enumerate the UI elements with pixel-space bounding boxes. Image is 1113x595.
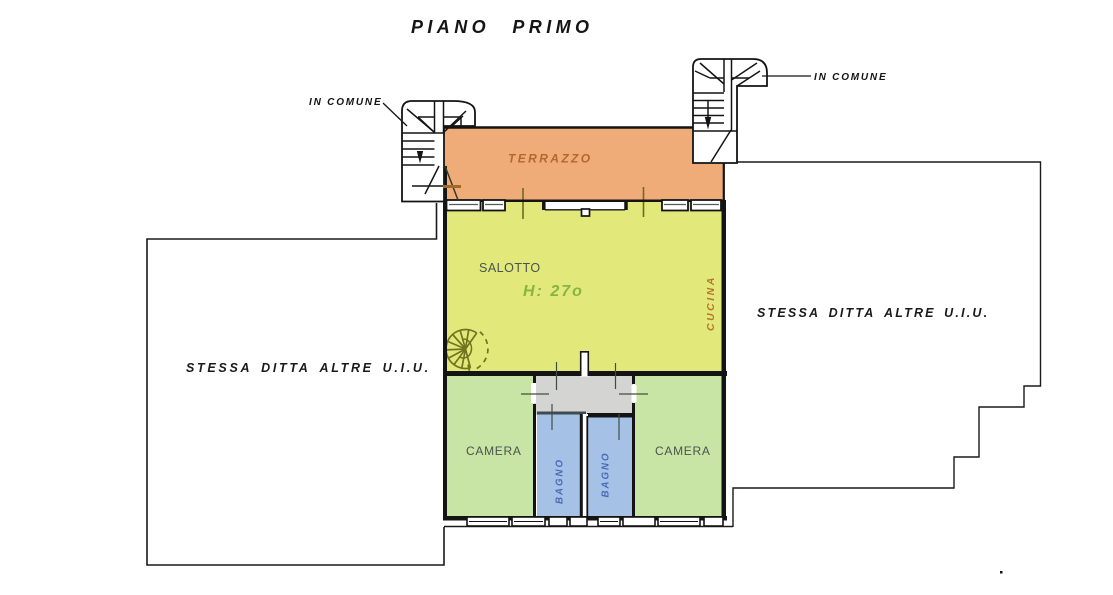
svg-text:IN COMUNE: IN COMUNE (814, 72, 887, 83)
svg-text:CAMERA: CAMERA (466, 444, 522, 458)
svg-text:PIANO PRIMO: PIANO PRIMO (411, 17, 593, 37)
svg-text:STESSA DITTA ALTRE U.I.U.: STESSA DITTA ALTRE U.I.U. (757, 306, 989, 320)
svg-text:STESSA DITTA ALTRE U.I.U.: STESSA DITTA ALTRE U.I.U. (186, 361, 431, 375)
svg-text:H: 27o: H: 27o (523, 283, 584, 300)
svg-text:TERRAZZO: TERRAZZO (508, 152, 593, 166)
svg-text:BAGNO: BAGNO (555, 458, 566, 504)
svg-text:CUCINA: CUCINA (705, 275, 717, 331)
svg-text:IN COMUNE: IN COMUNE (309, 97, 382, 108)
svg-text:BAGNO: BAGNO (601, 451, 612, 497)
svg-text:CAMERA: CAMERA (655, 444, 711, 458)
svg-text:SALOTTO: SALOTTO (479, 261, 541, 275)
